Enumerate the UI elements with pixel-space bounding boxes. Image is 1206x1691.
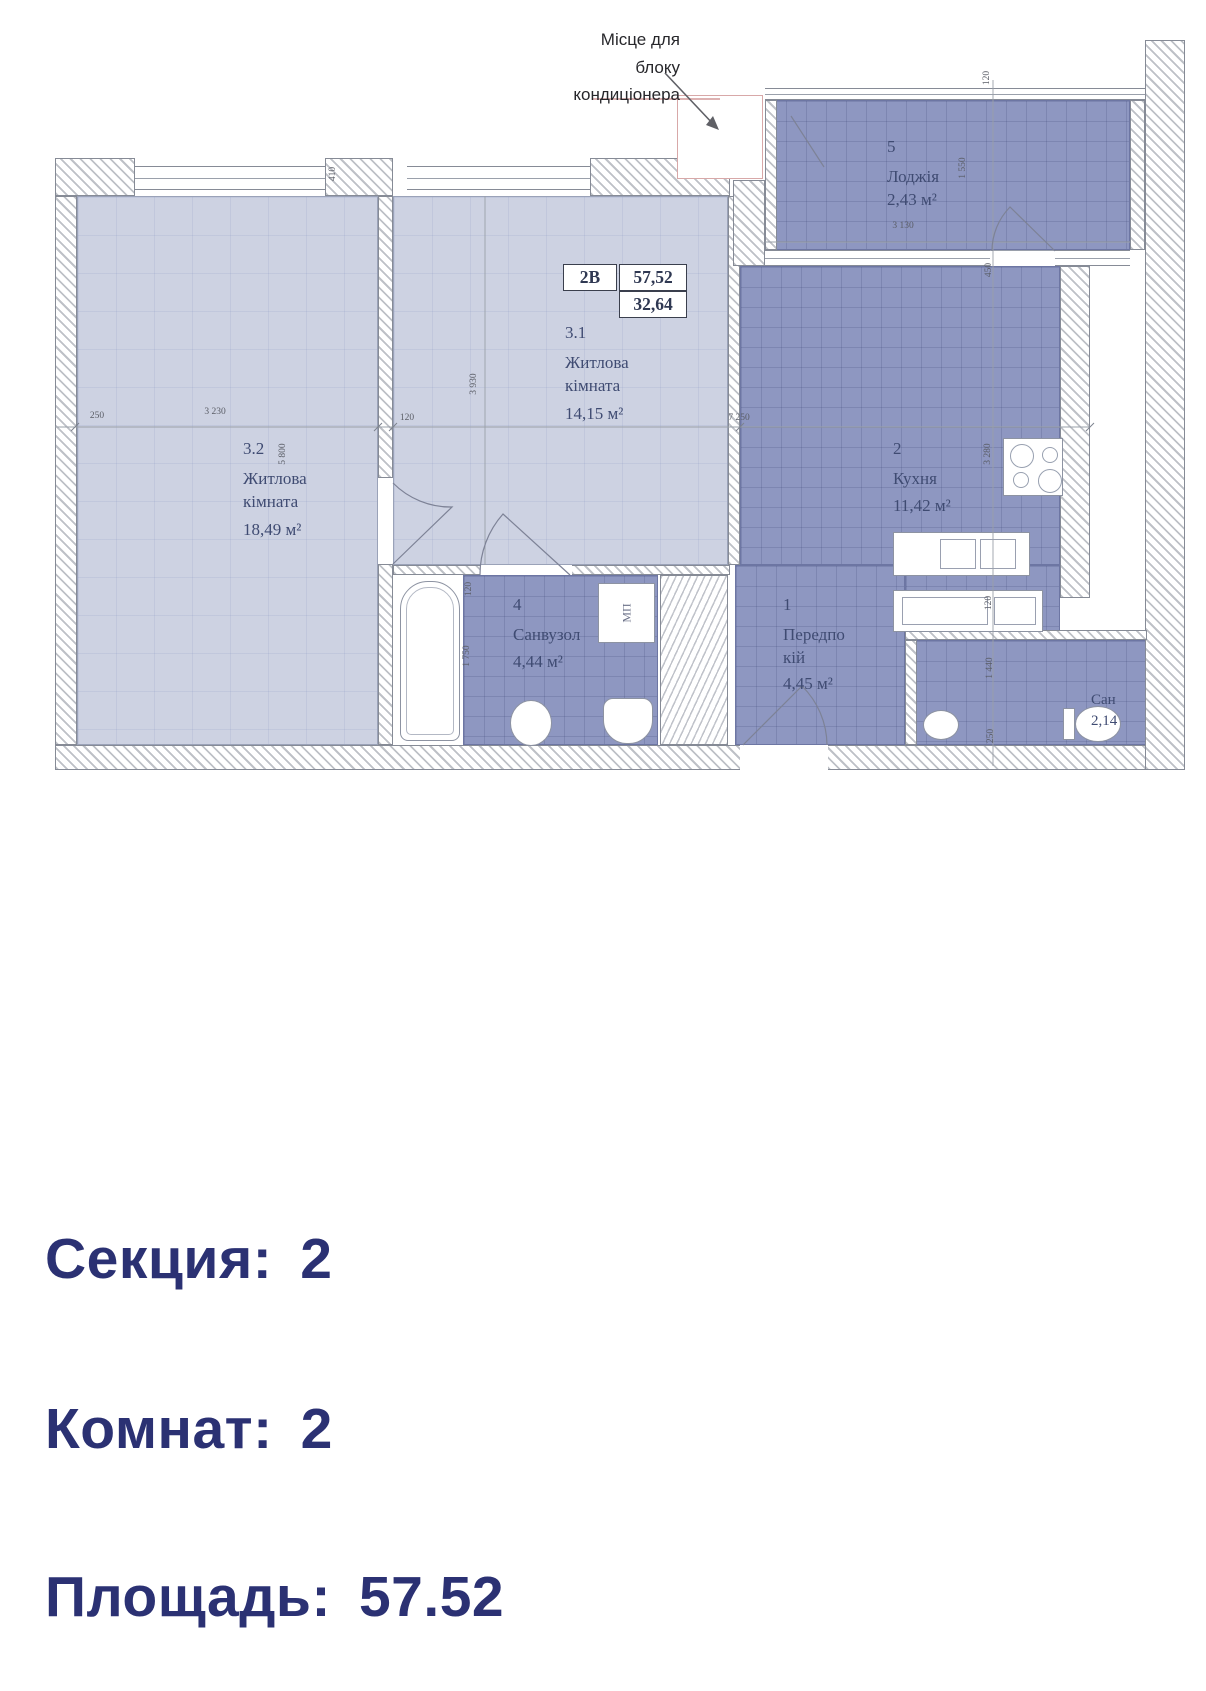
area-label: Площадь:: [45, 1564, 331, 1630]
listing-page: МП: [0, 0, 1206, 1691]
dimension-label: 1 440: [985, 657, 995, 678]
section-value: 2: [300, 1226, 332, 1292]
rooms-label: Комнат:: [45, 1396, 273, 1462]
dimension-label: 3 230: [204, 407, 225, 417]
dimension-label: 3 930: [469, 373, 479, 394]
dimension-label: 1 750: [462, 645, 472, 666]
rooms-value: 2: [301, 1396, 333, 1462]
dimension-label: 120: [984, 596, 994, 610]
area-row: Площадь: 57.52: [45, 1564, 504, 1630]
section-row: Секция: 2: [45, 1226, 332, 1292]
rooms-row: Комнат: 2: [45, 1396, 333, 1462]
dimension-label: 3 280: [983, 443, 993, 464]
dimension-label: 120: [982, 71, 992, 85]
decorative-corner-circle: [1162, 1582, 1206, 1691]
section-label: Секция:: [45, 1226, 272, 1292]
area-value: 57.52: [359, 1564, 504, 1630]
dimension-label: 5 800: [278, 443, 288, 464]
floor-plan: МП: [55, 18, 1195, 778]
dimension-label: 3 130: [892, 221, 913, 231]
dimension-label: 120: [400, 413, 414, 423]
dimension-label: 450: [984, 263, 994, 277]
dimension-label: 250: [986, 729, 996, 743]
dimension-label: 7 250: [728, 413, 749, 423]
dimension-label: 120: [464, 582, 474, 596]
dimension-layer: 4102503 2301207 2505 8003 9301201 5503 1…: [55, 18, 1195, 778]
dimension-label: 1 550: [958, 157, 968, 178]
dimension-label: 250: [90, 411, 104, 421]
dimension-label: 410: [328, 167, 338, 181]
